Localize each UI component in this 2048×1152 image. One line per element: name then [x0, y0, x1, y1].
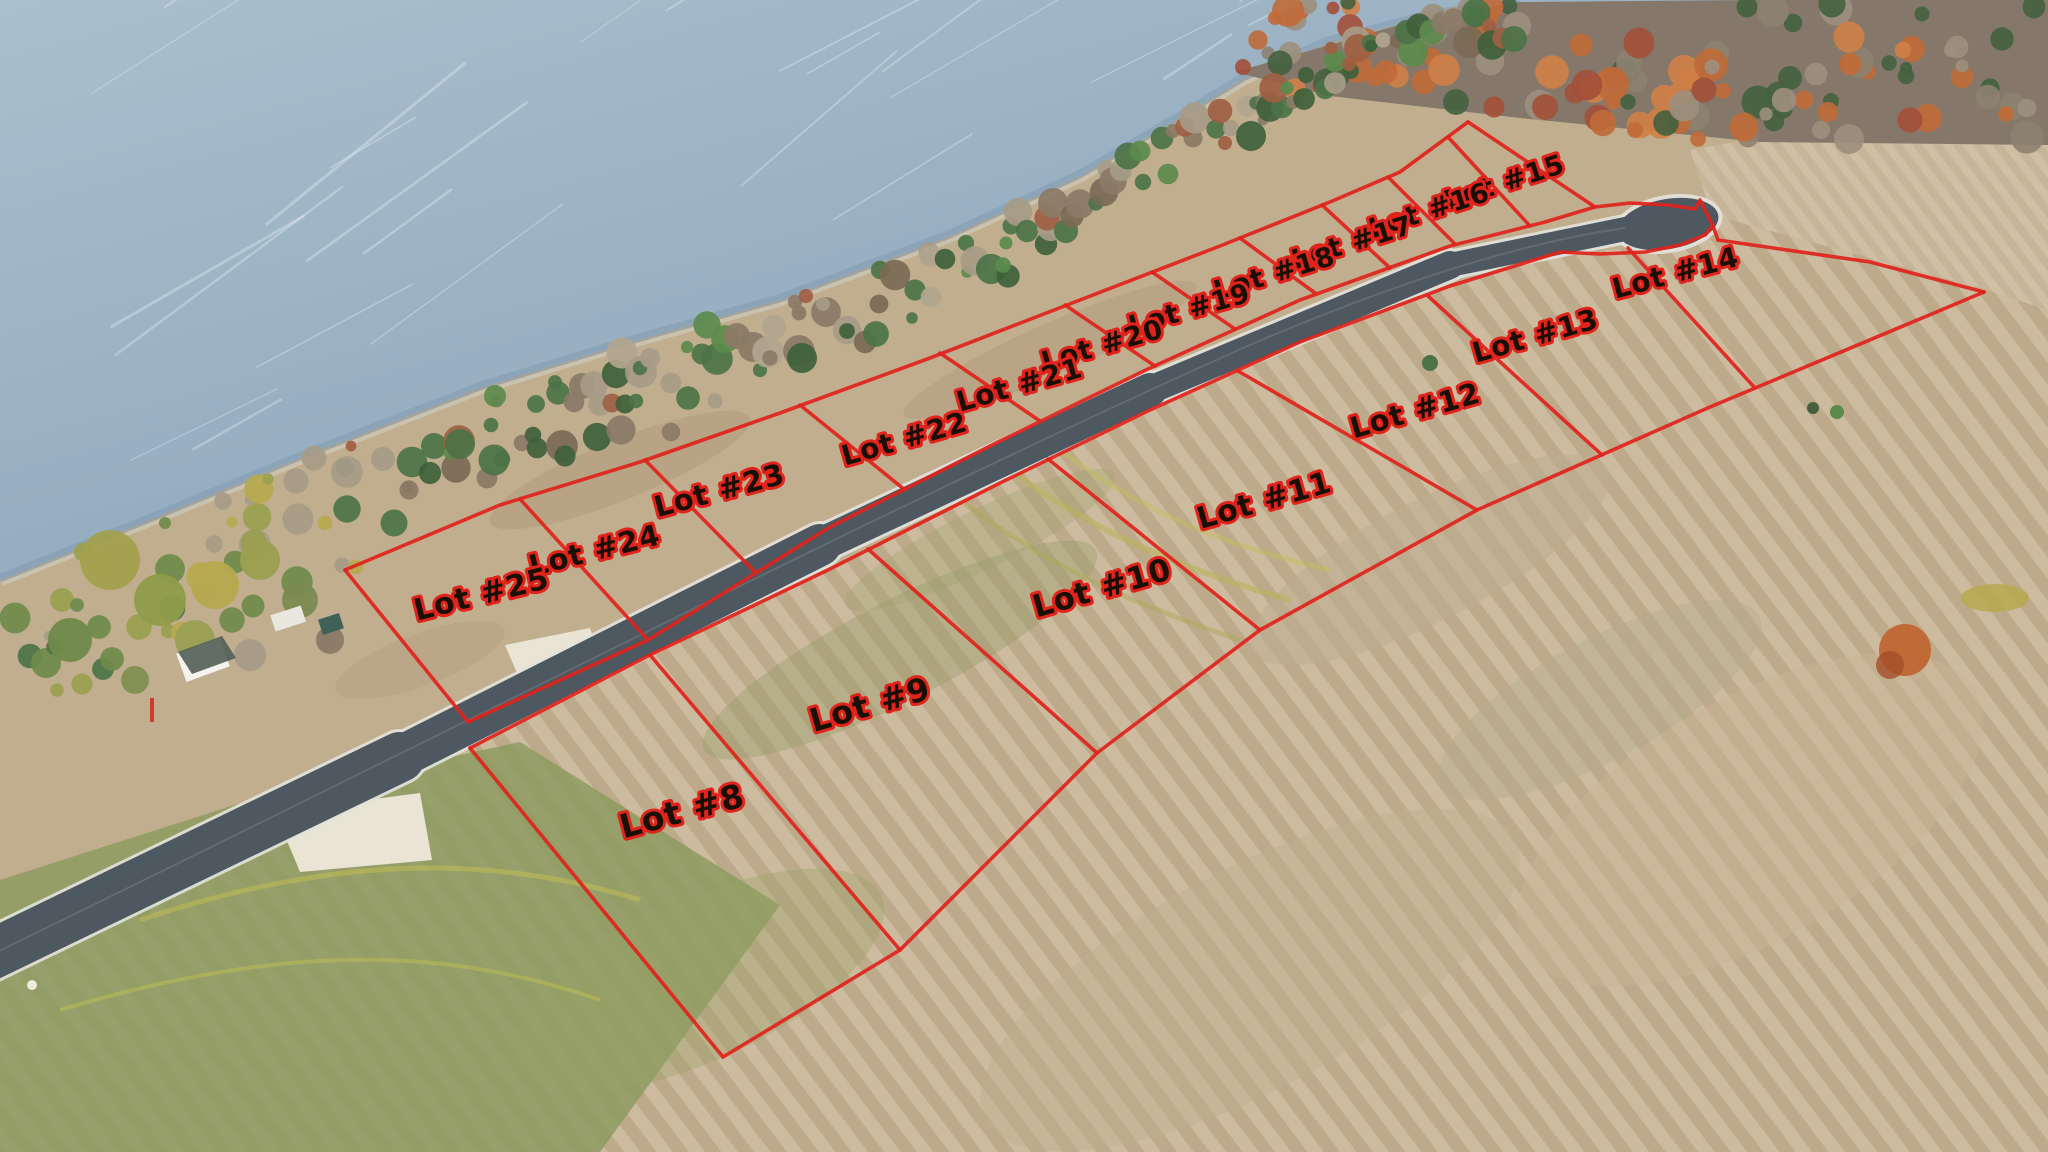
- tree: [1834, 124, 1864, 154]
- tree: [1692, 78, 1717, 103]
- tree: [1000, 237, 1013, 250]
- tree: [762, 315, 786, 339]
- tree: [863, 321, 889, 347]
- tree: [70, 598, 84, 612]
- tree: [1501, 26, 1527, 52]
- tree: [243, 503, 272, 532]
- tree: [681, 341, 693, 353]
- tree: [371, 447, 395, 471]
- tree: [606, 415, 635, 444]
- tree: [1900, 62, 1912, 74]
- tree: [525, 427, 542, 444]
- yellow-bush: [1961, 584, 2029, 612]
- tree: [262, 473, 273, 484]
- tree: [839, 323, 855, 339]
- tree: [1915, 7, 1930, 22]
- tree: [1834, 22, 1865, 53]
- tree: [527, 395, 545, 413]
- tree: [1990, 27, 2013, 50]
- tree: [2018, 99, 2037, 118]
- yard-tree: [191, 561, 239, 609]
- tree: [484, 385, 506, 407]
- tree: [816, 297, 830, 311]
- tree: [71, 673, 92, 694]
- yard-tree: [80, 530, 140, 590]
- tree: [331, 456, 363, 488]
- small-conifer: [1422, 355, 1438, 371]
- tree: [662, 423, 681, 442]
- tree: [1759, 107, 1772, 120]
- tree: [995, 257, 1011, 273]
- tree: [283, 468, 308, 493]
- tree: [1772, 88, 1796, 112]
- tree: [1532, 94, 1558, 120]
- tree: [1248, 30, 1267, 49]
- tree: [1881, 55, 1896, 70]
- tree: [302, 446, 327, 471]
- tree: [1690, 131, 1706, 147]
- tree: [1839, 53, 1862, 76]
- tree: [1327, 2, 1340, 15]
- tree: [1443, 89, 1469, 115]
- tree: [1158, 164, 1179, 185]
- tree: [1466, 6, 1485, 25]
- yard-tree: [48, 618, 92, 662]
- tree: [1324, 72, 1346, 94]
- tree: [1280, 81, 1293, 94]
- lone-orange-tree-shadow: [1876, 651, 1904, 679]
- tree: [1484, 97, 1505, 118]
- yard-tree: [234, 639, 266, 671]
- tree: [1235, 59, 1251, 75]
- tree: [50, 588, 74, 612]
- tree: [1130, 141, 1151, 162]
- yard-tree: [134, 574, 186, 626]
- tree: [1208, 99, 1233, 124]
- tree: [629, 394, 643, 408]
- tree: [205, 535, 222, 552]
- tree: [494, 451, 511, 468]
- tree: [1895, 42, 1912, 59]
- tree: [1365, 40, 1377, 52]
- tree: [1428, 54, 1460, 86]
- tree: [1730, 113, 1759, 142]
- tree: [333, 495, 360, 522]
- tree: [548, 375, 562, 389]
- tree: [1535, 55, 1569, 89]
- tree: [1778, 66, 1802, 90]
- tree: [1818, 102, 1838, 122]
- tree: [2010, 120, 2043, 153]
- tree: [676, 386, 700, 410]
- tree: [242, 595, 265, 618]
- tree: [445, 429, 475, 459]
- tree: [1944, 43, 1958, 57]
- tree: [787, 343, 817, 373]
- tree: [1812, 121, 1830, 139]
- tree: [935, 249, 956, 270]
- tree: [50, 683, 63, 696]
- tree: [214, 492, 231, 509]
- tree: [1805, 63, 1828, 86]
- tree: [661, 373, 682, 394]
- tree: [1268, 51, 1293, 76]
- tree: [227, 517, 238, 528]
- tree: [1998, 106, 2014, 122]
- tree: [0, 603, 30, 634]
- tree: [1624, 28, 1655, 59]
- tree: [1298, 67, 1314, 83]
- tree: [707, 393, 722, 408]
- tree: [1374, 60, 1397, 83]
- aerial-lot-map-screenshot: Lot #8Lot #9Lot #10Lot #11Lot #12Lot #13…: [0, 0, 2048, 1152]
- yard-tree: [121, 666, 149, 694]
- tree: [1179, 102, 1210, 133]
- tree: [1976, 85, 2001, 110]
- tree: [1325, 42, 1338, 55]
- tree: [421, 433, 447, 459]
- tree: [906, 312, 918, 324]
- tree: [1572, 70, 1602, 100]
- tree: [1135, 174, 1151, 190]
- tree: [1705, 60, 1720, 75]
- tree: [640, 348, 660, 368]
- tree: [1795, 91, 1813, 109]
- tree: [1293, 88, 1315, 110]
- tree: [554, 445, 575, 466]
- tree: [1956, 60, 1969, 73]
- tree: [1590, 110, 1616, 136]
- aerial-plat-map: Lot #8Lot #9Lot #10Lot #11Lot #12Lot #13…: [0, 0, 2048, 1152]
- tree: [484, 418, 499, 433]
- tree: [419, 462, 441, 484]
- tree: [1715, 83, 1731, 99]
- tree: [318, 516, 333, 531]
- tree: [921, 287, 942, 308]
- tree: [1570, 34, 1593, 57]
- tree: [399, 480, 418, 499]
- tree: [381, 510, 408, 537]
- tree: [1236, 121, 1266, 151]
- tree: [219, 607, 244, 632]
- tree: [100, 647, 124, 671]
- tree: [762, 350, 777, 365]
- tree: [1627, 122, 1643, 138]
- tree: [799, 289, 813, 303]
- tree: [346, 441, 357, 452]
- tree: [282, 503, 313, 534]
- tree: [1897, 107, 1922, 132]
- tree: [1218, 136, 1232, 150]
- tree: [1016, 220, 1038, 242]
- gravel-dot: [27, 980, 37, 990]
- small-conifer: [1807, 402, 1819, 414]
- small-conifer: [1830, 405, 1844, 419]
- tree: [792, 306, 807, 321]
- tree: [1375, 32, 1390, 47]
- tree: [159, 517, 171, 529]
- tree: [870, 295, 889, 314]
- yard-tree: [240, 540, 280, 580]
